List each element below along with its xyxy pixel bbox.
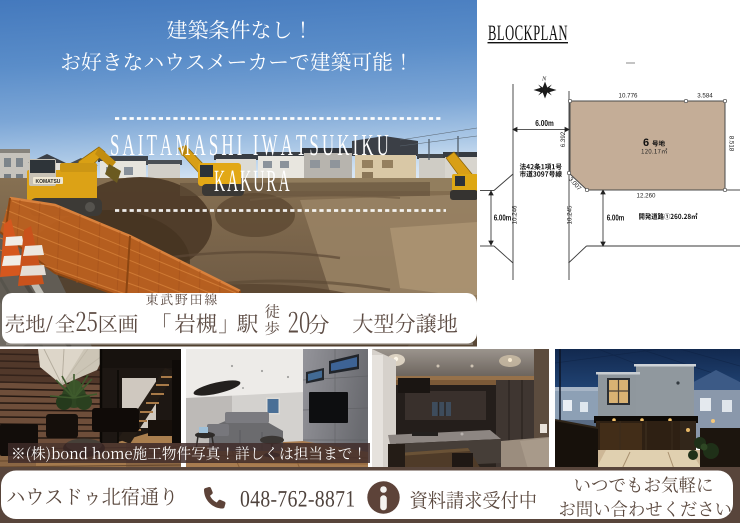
svg-text:6.00m: 6.00m bbox=[607, 214, 625, 223]
svg-text:N: N bbox=[541, 76, 547, 83]
svg-text:6.00m: 6.00m bbox=[535, 119, 554, 128]
svg-text:8.518: 8.518 bbox=[728, 136, 735, 152]
svg-text:6: 6 bbox=[643, 137, 649, 149]
svg-text:6.00m: 6.00m bbox=[494, 214, 512, 223]
svg-text:10.246: 10.246 bbox=[512, 205, 519, 224]
svg-text:3.584: 3.584 bbox=[697, 93, 713, 100]
svg-text:KOMATSU: KOMATSU bbox=[36, 179, 61, 185]
svg-text:12.260: 12.260 bbox=[637, 193, 656, 200]
svg-text:10.245: 10.245 bbox=[567, 205, 574, 224]
svg-text:10.776: 10.776 bbox=[619, 93, 638, 100]
svg-text:6.392: 6.392 bbox=[560, 131, 567, 147]
